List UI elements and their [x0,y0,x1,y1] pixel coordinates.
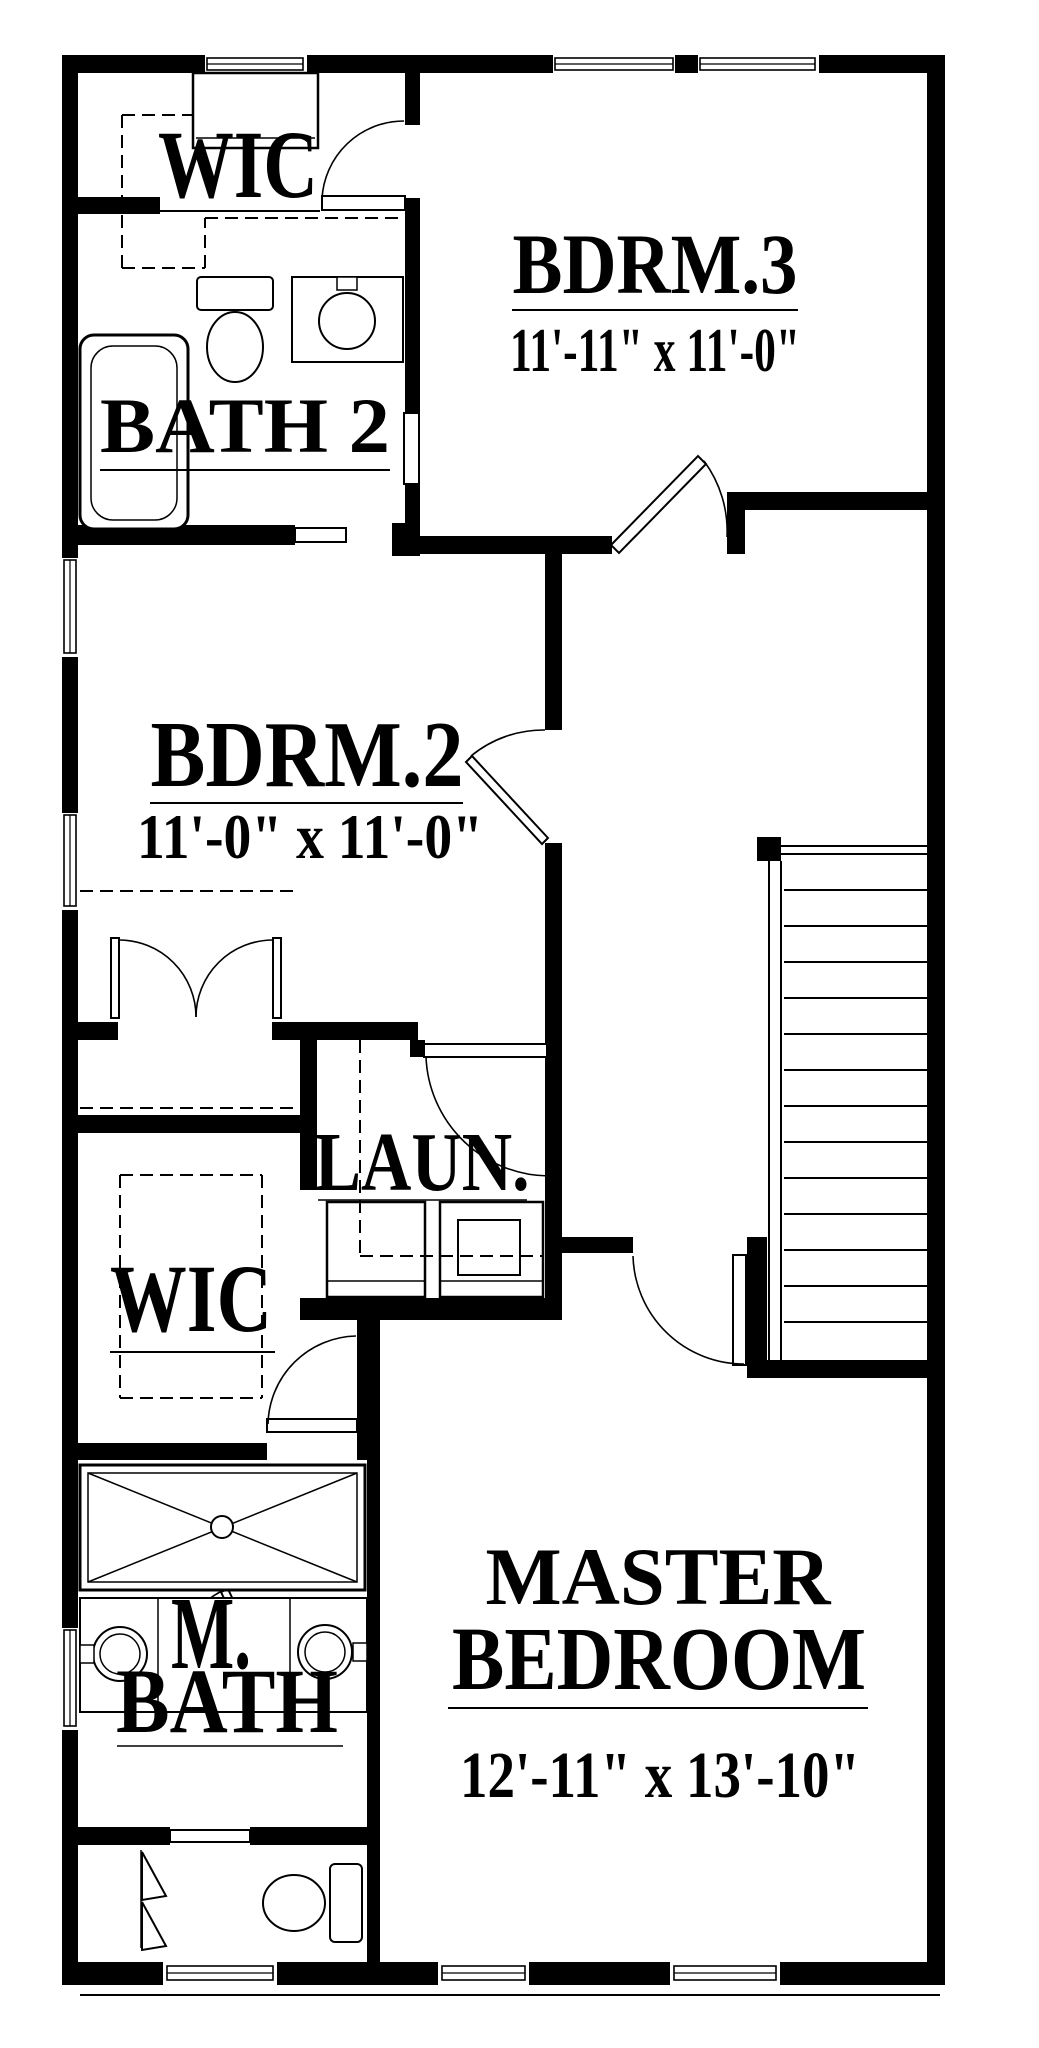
window-bottom-center [438,1960,529,1987]
floor-plan-page: WIC BDRM.3 11'-11" x 11'-0" BATH 2 BDRM.… [0,0,1039,2048]
bath2-sink-vanity [292,277,403,362]
window-bottom-left [163,1960,277,1987]
dryer [440,1202,543,1297]
stair-newel-post [757,837,781,861]
mbath-toilet [263,1864,362,1942]
master-door [633,1255,746,1365]
label-wic-lower: WIC [110,1245,272,1352]
bath2-pocket-door [295,528,346,542]
window-left-mbath [60,1628,80,1730]
window-bottom-right [670,1960,780,1987]
dims-bdrm2: 11'-0" x 11'-0" [137,801,483,872]
floor-plan-drawing: WIC BDRM.3 11'-11" x 11'-0" BATH 2 BDRM.… [0,0,1039,2048]
stair-treads [784,890,927,1322]
wic-top-door [322,121,405,210]
staircase [757,837,927,1360]
bifold-closet-door [141,1850,166,1950]
wic-lower-door [267,1336,357,1432]
dims-bdrm3: 11'-11" x 11'-0" [510,317,800,385]
shower [80,1465,365,1590]
washer [327,1202,425,1297]
window-left-bdrm2-lower [60,813,80,910]
label-bath2: BATH 2 [100,382,390,469]
label-wic-top: WIC [158,111,318,218]
shower-drain [211,1516,233,1538]
bath2-door [404,413,419,484]
cased-opening [170,1830,250,1842]
label-bdrm2: BDRM.2 [151,703,464,807]
window-top-wic [205,53,307,75]
label-bdrm3: BDRM.3 [513,216,798,312]
bdrm3-door [611,456,727,553]
bath2-toilet [197,277,273,382]
bdrm2-closet-double-door [111,938,281,1018]
dims-master: 12'-11" x 13'-10" [460,1739,860,1812]
window-left-bdrm2-upper [60,558,80,657]
label-master-line2: BEDROOM [452,1610,866,1709]
label-mbath-line2: BATH [116,1650,338,1752]
label-laundry: LAUN. [315,1116,530,1209]
window-top-bdrm3-right [698,53,819,75]
label-master-line1: MASTER [486,1531,832,1622]
window-top-bdrm3-left [553,53,675,75]
